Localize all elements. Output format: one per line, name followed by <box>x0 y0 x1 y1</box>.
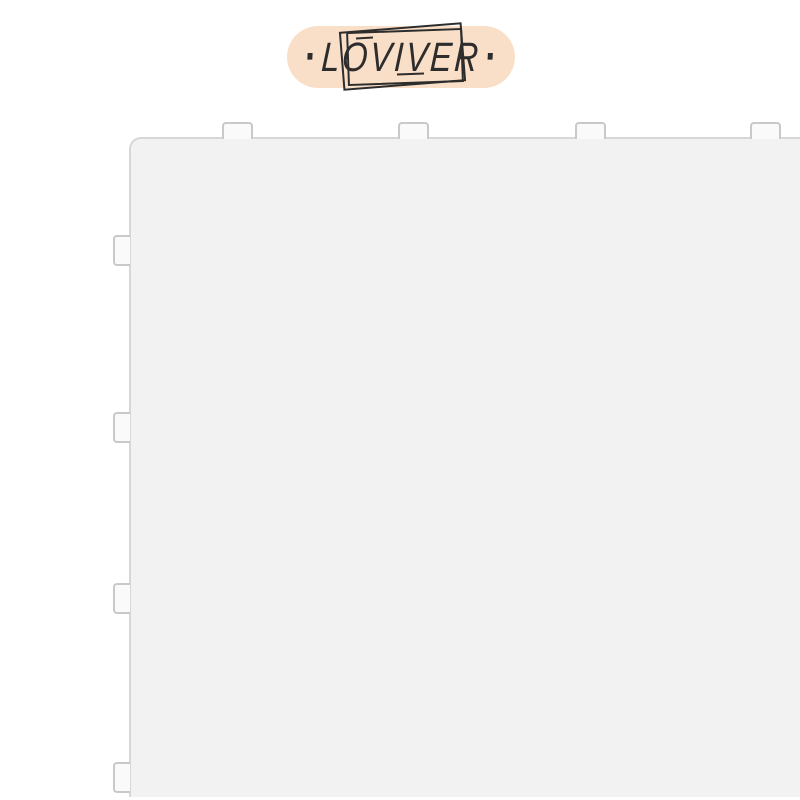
tile-tab-top-4 <box>750 122 781 139</box>
tile-tab-left-4 <box>113 762 130 793</box>
tile-tab-top-2 <box>398 122 429 139</box>
brand-badge: · LOVIVER · <box>287 26 515 88</box>
logo-left-dot: · <box>304 35 318 79</box>
brand-name: LOVIVER <box>320 37 481 78</box>
tile-tab-top-3 <box>575 122 606 139</box>
brand-logo: · LOVIVER · <box>308 26 494 88</box>
tile-tab-left-2 <box>113 412 130 443</box>
logo-right-dot: · <box>484 35 498 79</box>
tile-tab-left-3 <box>113 583 130 614</box>
tile-tab-top-1 <box>222 122 253 139</box>
tile-panel <box>129 137 800 797</box>
product-photo: · LOVIVER · <box>0 0 800 800</box>
tile-tab-left-1 <box>113 235 130 266</box>
